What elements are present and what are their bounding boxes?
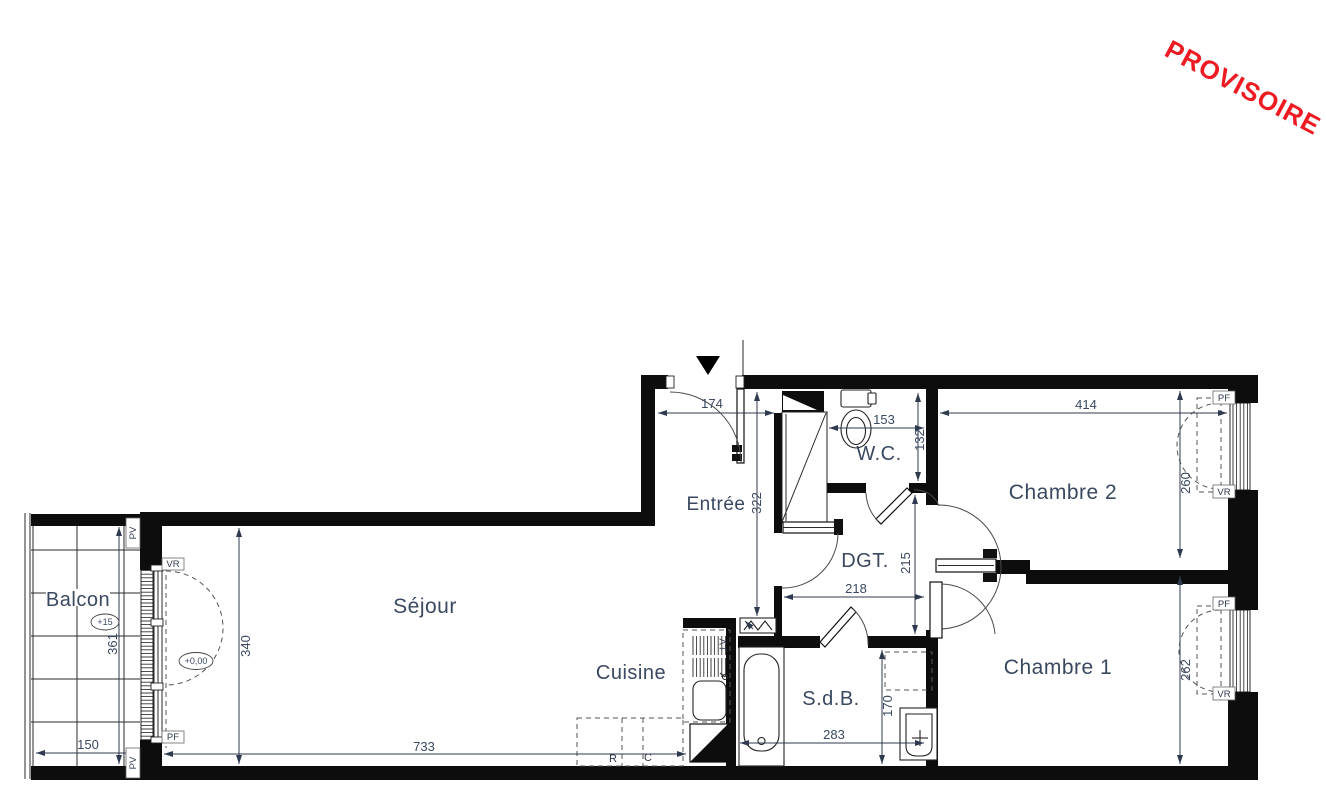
dim-chambre2-width: 414 (1075, 397, 1097, 412)
tag-pf-balcon: PF (167, 732, 179, 743)
room-label-chambre2: Chambre 2 (1009, 481, 1117, 504)
door-chambre1 (930, 582, 995, 638)
tag-lv-dishwasher: LV (718, 638, 729, 650)
room-label-chambre1: Chambre 1 (1004, 656, 1112, 679)
room-label-wc: W.C. (856, 443, 901, 465)
dim-dgt-height: 215 (898, 552, 913, 574)
dim-entree-width: 174 (701, 396, 723, 411)
floor-plan-page: 174 322 153 132 414 260 218 215 262 283 … (0, 0, 1326, 800)
tag-pv-top: PV (128, 526, 139, 539)
tag-refrigerateur: R (609, 753, 617, 765)
dim-dgt-width: 218 (845, 581, 867, 596)
tag-vr-balcon: VR (166, 559, 179, 570)
walls (31, 375, 1258, 780)
tag-vr-chambre2: VR (1217, 487, 1230, 498)
duct-shaft-cuisine (690, 724, 728, 762)
level-balcon: +15 (97, 617, 112, 627)
dim-balcon-height: 361 (105, 633, 120, 655)
washbasin-symbol (900, 708, 937, 760)
tag-pf-chambre1: PF (1218, 599, 1230, 610)
dim-wc-width: 153 (873, 412, 895, 427)
floor-plan-drawing: 174 322 153 132 414 260 218 215 262 283 … (0, 0, 1326, 800)
tag-vr-chambre1: VR (1217, 689, 1230, 700)
door-wc (866, 488, 912, 524)
door-entree-dgt (782, 519, 843, 588)
room-label-cuisine: Cuisine (596, 662, 666, 684)
window-tags: VR PF PF VR PF VR PV PV LV R C (126, 391, 1235, 778)
kitchen-counter (577, 718, 683, 766)
bathtub-symbol (739, 647, 784, 766)
level-interieur: +0,00 (185, 656, 208, 666)
watermark-provisoire: PROVISOIRE (1160, 34, 1326, 141)
dim-entree-height: 322 (749, 492, 764, 514)
toilet-symbol (841, 390, 876, 448)
entrance-arrow-icon (696, 356, 720, 375)
room-label-balcon: Balcon (46, 589, 110, 611)
room-label-entree: Entrée (687, 494, 746, 515)
room-label-sejour: Séjour (393, 595, 457, 618)
closet (782, 412, 827, 523)
tag-pv-bottom: PV (128, 756, 139, 769)
radiator-symbol (740, 618, 776, 633)
dim-wc-height: 132 (912, 429, 927, 451)
washer-location (885, 652, 932, 690)
dim-chambre2-height: 260 (1178, 472, 1193, 494)
dim-sdb-width: 283 (823, 727, 845, 742)
dim-chambre1-height: 262 (1178, 659, 1193, 681)
dim-balcon-width: 150 (77, 737, 99, 752)
dim-sejour-height: 340 (238, 635, 253, 657)
room-label-dgt: DGT. (841, 550, 889, 572)
door-dgt-chambres (914, 490, 1001, 629)
tag-cuisiniere: C (644, 752, 652, 764)
door-sdb (820, 607, 868, 647)
dim-sdb-height: 170 (880, 695, 895, 717)
tag-pf-chambre2: PF (1218, 393, 1230, 404)
room-label-sdb: S.d.B. (802, 688, 859, 710)
dim-sejour-width: 733 (413, 739, 435, 754)
duct-shaft-entree (782, 391, 824, 412)
